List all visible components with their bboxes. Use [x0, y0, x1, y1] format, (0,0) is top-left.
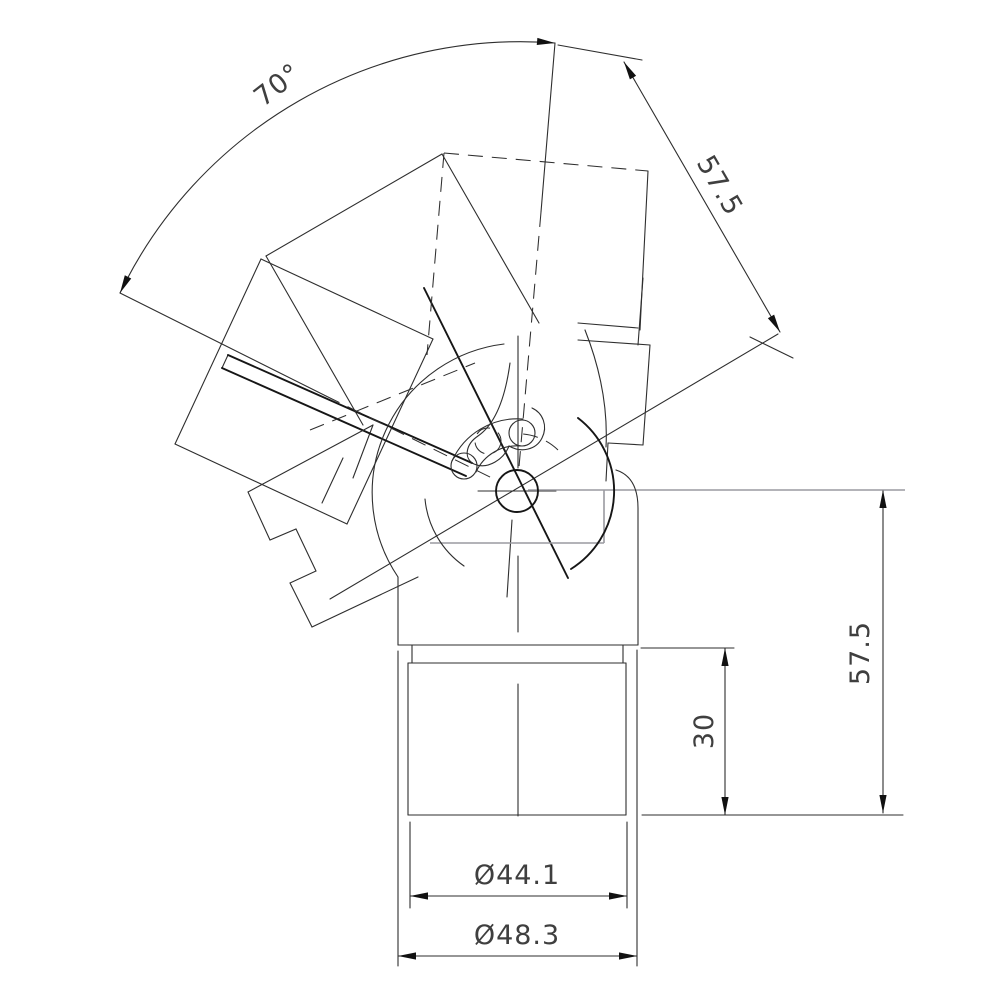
drawing-sheet: 70°57.557.530Ø44.1Ø48.3	[0, 0, 1000, 1000]
arrow-57o-bottom	[768, 315, 783, 334]
arrow-arc-bottom	[117, 275, 131, 294]
angle-leg-85-upper	[541, 43, 555, 212]
elbow-connector-drawing: 70°57.557.530Ø44.1Ø48.3	[0, 0, 1000, 1000]
dim-label-angle: 70°	[248, 57, 307, 113]
dim-label-insert-depth: 30	[689, 713, 720, 749]
angle-arc-70	[120, 42, 555, 293]
lever-lower-edge	[222, 368, 466, 476]
arrow-arc-top	[537, 38, 556, 47]
ext-57-oblique-bottom	[750, 337, 793, 358]
arrow-57r-top	[879, 490, 886, 508]
clamp-85-step-c	[608, 443, 643, 445]
housing-corner-round	[616, 470, 638, 508]
lever-end-cap	[222, 355, 228, 368]
dim-label-inner-dia: Ø44.1	[474, 860, 560, 891]
dim-line-57-oblique	[624, 62, 780, 332]
tube-120-end	[266, 154, 442, 256]
clamp-85-step-d	[606, 443, 608, 481]
bolt-phantom	[475, 428, 501, 454]
tube-155-end	[175, 259, 261, 444]
slot-ext-arc	[523, 434, 558, 450]
ball-arc-left	[425, 499, 464, 566]
dim-label-outer-dia: Ø48.3	[474, 920, 560, 951]
lever-phantom	[310, 363, 475, 430]
ext-57-oblique-top	[558, 45, 642, 60]
pivot-ray-30deg	[330, 334, 778, 599]
clamp-85-step-a	[638, 278, 643, 345]
arrow-44-right	[609, 892, 627, 899]
angle-leg-155-upper	[120, 293, 326, 396]
tube-120-left	[266, 256, 363, 425]
tube-155-lower	[175, 444, 347, 524]
angle-leg-155-mid	[326, 396, 498, 481]
socket-bell-curve	[585, 330, 606, 447]
dim-label-arm-length: 57.5	[690, 150, 749, 221]
arrow-48-left	[398, 952, 416, 959]
arrow-57o-top	[621, 60, 636, 79]
centerline-116	[424, 288, 568, 578]
arrow-30-bottom	[721, 797, 728, 815]
arrow-57r-bottom	[879, 795, 886, 813]
angle-leg-85-lower	[507, 520, 512, 597]
angle-leg-85-mid	[519, 212, 541, 467]
socket-85-end-a	[578, 323, 638, 328]
arrow-44-left	[410, 892, 428, 899]
arrow-30-top	[721, 648, 728, 666]
clamp-85-step-b	[643, 345, 650, 445]
tube-120-right	[442, 154, 539, 323]
dim-label-height: 57.5	[845, 621, 876, 685]
ball-arc-dark	[571, 418, 614, 569]
tube-155-upper	[261, 259, 433, 339]
arrow-48-right	[619, 952, 637, 959]
clamp-155-far-a	[322, 458, 343, 503]
